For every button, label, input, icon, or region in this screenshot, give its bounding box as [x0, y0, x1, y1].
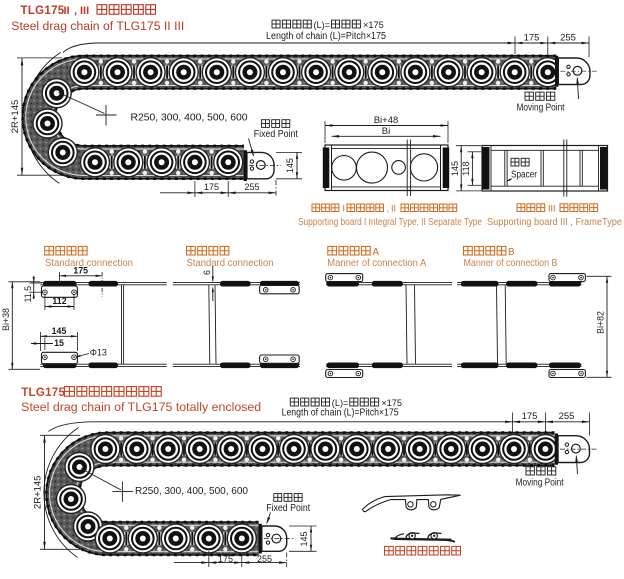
svg-text:Supporting board I Integral: Supporting board I Integral Type, II Sep… [298, 217, 482, 228]
svg-text:III: III [80, 5, 89, 17]
svg-text:Bi+38: Bi+38 [1, 308, 11, 331]
svg-text:TLG175: TLG175 [21, 5, 65, 17]
svg-text:175: 175 [524, 33, 540, 44]
svg-text:145: 145 [285, 158, 295, 173]
svg-text:Steel drag chain of TLG175 tot: Steel drag chain of TLG175 totally enclo… [21, 400, 261, 414]
svg-text:×175: ×175 [381, 398, 402, 408]
svg-text:15: 15 [54, 338, 64, 348]
svg-text:Fixed Point: Fixed Point [254, 129, 298, 140]
svg-text:145: 145 [299, 531, 309, 546]
svg-text:Moving Point: Moving Point [516, 478, 564, 489]
svg-text:Supporting board III , FrameT: Supporting board III , FrameType [487, 217, 623, 228]
svg-text:×175: ×175 [363, 20, 384, 30]
svg-text:Length of chain (L)=Pitch×175: Length of chain (L)=Pitch×175 [282, 408, 399, 419]
svg-text:255: 255 [559, 411, 575, 422]
svg-text:255: 255 [244, 182, 259, 192]
svg-text:Moving Point: Moving Point [517, 102, 565, 113]
svg-text:255: 255 [257, 554, 272, 564]
svg-text:112: 112 [52, 296, 66, 306]
svg-text:11.5: 11.5 [23, 286, 33, 303]
svg-text:2R+145: 2R+145 [10, 100, 21, 134]
svg-text:175: 175 [204, 182, 219, 192]
svg-text:145: 145 [450, 161, 460, 176]
svg-text:118: 118 [461, 161, 471, 175]
svg-text:(L)=: (L)= [332, 398, 349, 408]
svg-text:II: II [391, 204, 396, 214]
svg-text:(L)=: (L)= [314, 20, 331, 30]
svg-text:Φ13: Φ13 [90, 347, 107, 357]
svg-text:Manner of connection A: Manner of connection A [327, 258, 426, 269]
svg-text:175: 175 [73, 266, 88, 276]
svg-text:R250, 300, 400, 500, 600: R250, 300, 400, 500, 600 [135, 486, 248, 497]
svg-text:I: I [343, 204, 346, 214]
svg-text:Standard connection: Standard connection [187, 258, 274, 269]
svg-text:Bi+48: Bi+48 [374, 115, 399, 126]
svg-text:175: 175 [522, 411, 538, 422]
svg-text:Spacer: Spacer [511, 170, 538, 181]
svg-text:Standard connection: Standard connection [45, 258, 133, 269]
svg-text:,: , [387, 204, 390, 214]
svg-text:R250, 300, 400, 500, 600: R250, 300, 400, 500, 600 [131, 113, 248, 124]
svg-text:,: , [74, 5, 77, 17]
svg-text:Fixed Point: Fixed Point [266, 503, 310, 514]
svg-text:Length of chain (L)=Pitch×175: Length of chain (L)=Pitch×175 [266, 31, 387, 42]
svg-text:175: 175 [218, 554, 233, 564]
svg-text:TLG175: TLG175 [21, 387, 65, 399]
svg-text:II: II [64, 5, 70, 17]
svg-text:B: B [508, 247, 515, 258]
svg-text:2R+145: 2R+145 [33, 476, 44, 510]
svg-text:255: 255 [560, 33, 576, 44]
svg-text:Bi+82: Bi+82 [595, 311, 605, 334]
svg-text:III: III [548, 204, 556, 214]
svg-text:Bi: Bi [382, 126, 390, 137]
svg-text:6: 6 [202, 270, 212, 275]
svg-text:Manner of connection B: Manner of connection B [464, 258, 558, 269]
svg-text:145: 145 [52, 326, 67, 336]
svg-text:A: A [373, 247, 380, 258]
svg-text:Steel drag chain of TLG175 II: Steel drag chain of TLG175 II III [11, 19, 184, 33]
